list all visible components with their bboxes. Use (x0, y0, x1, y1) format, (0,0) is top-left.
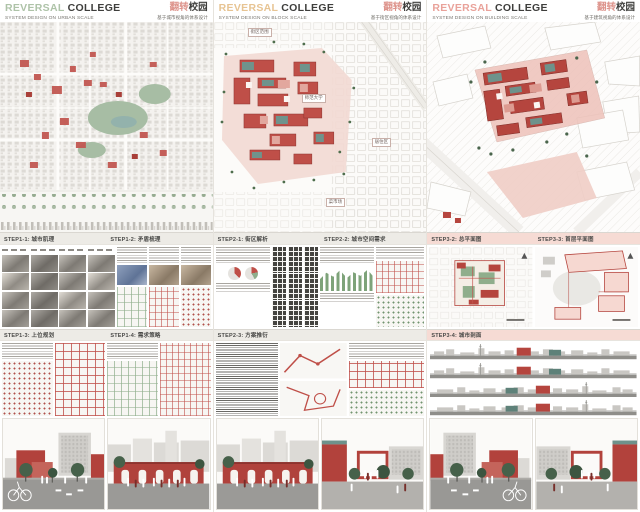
site-photo (88, 310, 115, 327)
red-wall-render (216, 418, 319, 510)
step-label: STEP1-3: 上位规划 (0, 331, 106, 339)
map-label: 街区范围 (248, 28, 272, 37)
title-cn-accent: 翻转 (170, 2, 189, 13)
presentation-board: REVERSAL COLLEGE SYSTEM DESIGN ON URBAN … (0, 0, 640, 512)
plan-thumb (272, 247, 286, 273)
step-label: STEP3-2: 总平面图 (427, 235, 533, 243)
analysis-map (376, 261, 424, 293)
pie-charts (216, 265, 270, 281)
panel1-title-cn: 翻转校园 基于城市视角的体系设计 (157, 3, 208, 22)
title-en-rest: COLLEGE (495, 2, 548, 14)
site-photo (2, 255, 29, 272)
floorplan-matrix (272, 247, 318, 327)
panel3-header: REVERSAL COLLEGE SYSTEM DESIGN ON BUILDI… (427, 0, 640, 22)
analysis-map (181, 287, 211, 327)
analysis-map (376, 295, 424, 327)
photo-column-header (59, 249, 86, 252)
title-en-rest: COLLEGE (281, 2, 334, 14)
strategy-map (107, 361, 158, 416)
site-photo (31, 255, 58, 272)
photo-column-header (88, 249, 115, 252)
subtitle-cn: 基于建筑视角的体系设计 (584, 15, 635, 21)
title-en-accent: REVERSAL (219, 2, 278, 14)
title-cn-rest: 校园 (402, 2, 421, 13)
site-photo (88, 292, 115, 309)
step-label: STEP2-3: 方案推衍 (214, 331, 427, 339)
plan-thumbnails (272, 247, 318, 327)
site-photo (31, 273, 58, 290)
site-photo (88, 273, 115, 290)
analysis-column (149, 247, 179, 327)
title-cn-accent: 翻转 (597, 2, 616, 13)
title-en-accent: REVERSAL (5, 2, 64, 14)
panel2-header: REVERSAL COLLEGE SYSTEM DESIGN ON BLOCK … (214, 0, 427, 22)
pie-chart (245, 267, 258, 280)
contradiction-analysis (117, 247, 211, 327)
site-photo (88, 255, 115, 272)
subtitle-en: SYSTEM DESIGN ON URBAN SCALE (5, 16, 120, 21)
photo-column-header (31, 249, 58, 252)
plan-thumb (288, 274, 302, 300)
site-photo (2, 310, 29, 327)
program-text-block (216, 343, 279, 416)
site-photo (59, 273, 86, 290)
strategy-map (55, 343, 106, 416)
plan-thumb (304, 247, 318, 273)
plan-thumb (272, 301, 286, 327)
scale-bar (612, 319, 630, 321)
text-block (376, 247, 424, 259)
scale-bar (507, 319, 525, 321)
strategy-column (2, 343, 53, 416)
analysis-column (216, 247, 270, 327)
photo-column-header (2, 249, 29, 252)
step-label: STEP2-2: 城市空间需求 (320, 235, 426, 243)
text-block (107, 343, 158, 359)
text-block (320, 247, 374, 263)
subtitle-en: SYSTEM DESIGN ON BLOCK SCALE (219, 16, 334, 21)
panel1-site-photo-analysis (0, 245, 213, 329)
route-diagram (280, 381, 347, 417)
panel3-step-banner-1: STEP3-2: 总平面图 STEP3-3: 首层平面图 (427, 232, 640, 245)
analysis-column (376, 247, 424, 327)
urban-figure-ground-map (0, 22, 213, 232)
panel-urban-scale: REVERSAL COLLEGE SYSTEM DESIGN ON URBAN … (0, 0, 213, 512)
strategy-map (349, 390, 424, 417)
panel2-scheme-derivation (214, 341, 427, 418)
text-block (2, 343, 53, 359)
route-diagrams (280, 343, 347, 416)
plan-thumb (304, 301, 318, 327)
plan-thumb (304, 274, 318, 300)
text-block (320, 293, 374, 303)
analysis-photo (117, 265, 147, 285)
panel1-title-en: REVERSAL COLLEGE SYSTEM DESIGN ON URBAN … (5, 3, 120, 22)
strategy-column (55, 343, 106, 416)
pie-chart (228, 267, 241, 280)
panel2-step-banner-1: STEP2-1: 街区解析 STEP2-2: 城市空间需求 (214, 232, 427, 245)
site-photo (2, 292, 29, 309)
text-block (216, 247, 270, 263)
analysis-column (181, 247, 211, 327)
city-section-strip (430, 362, 637, 379)
analysis-map (149, 287, 179, 327)
map-label: 居住区 (372, 138, 392, 147)
step-label: STEP1-4: 需求策略 (106, 331, 212, 339)
panel2-perspective-renders (214, 418, 427, 512)
text-block (117, 247, 147, 263)
site-photo (31, 310, 58, 327)
route-diagram (280, 343, 347, 379)
map-label: 菜市场 (326, 198, 346, 207)
subtitle-en: SYSTEM DESIGN ON BUILDING SCALE (432, 16, 547, 21)
site-photo (2, 273, 29, 290)
site-photo (59, 255, 86, 272)
building-axonometric (427, 22, 640, 232)
panel-block-scale: REVERSAL COLLEGE SYSTEM DESIGN ON BLOCK … (213, 0, 427, 512)
plan-thumb (272, 274, 286, 300)
street-render (429, 418, 532, 510)
panel2-step-banner-2: STEP2-3: 方案推衍 (214, 329, 427, 341)
city-section-strip (430, 399, 637, 416)
title-en-accent: REVERSAL (432, 2, 491, 14)
step-label: STEP3-3: 首层平面图 (534, 235, 640, 243)
plaza-render (535, 418, 638, 510)
step-label: STEP1-2: 矛盾梳理 (106, 235, 212, 243)
city-section-strip (430, 343, 637, 360)
panel-building-scale: REVERSAL COLLEGE SYSTEM DESIGN ON BUILDI… (426, 0, 640, 512)
site-plan (429, 247, 532, 327)
street-render (2, 418, 105, 510)
panel1-planning-strategy (0, 341, 213, 418)
panel3-step-banner-2: STEP3-4: 城市剖面 (427, 329, 640, 341)
panel1-step-banner-1: STEP1-1: 城市肌理 STEP1-2: 矛盾梳理 (0, 232, 213, 245)
panel3-title-en: REVERSAL COLLEGE SYSTEM DESIGN ON BUILDI… (432, 3, 547, 22)
subtitle-cn: 基于街区视角的体系设计 (371, 15, 422, 21)
block-plan-map: 街区范围 师范大学 菜市场 居住区 (214, 22, 427, 232)
step-label: STEP1-1: 城市肌理 (0, 235, 106, 243)
analysis-map (117, 287, 147, 327)
step-label: STEP3-4: 城市剖面 (427, 331, 640, 339)
strategy-map (2, 361, 53, 416)
analysis-photo (181, 265, 211, 285)
title-en-rest: COLLEGE (68, 2, 121, 14)
courtyard-render (321, 418, 424, 510)
panel1-header: REVERSAL COLLEGE SYSTEM DESIGN ON URBAN … (0, 0, 213, 22)
strategy-map (160, 343, 211, 416)
title-cn-rest: 校园 (189, 2, 208, 13)
panel3-city-sections (427, 341, 640, 418)
site-photo (31, 292, 58, 309)
text-block (349, 343, 424, 359)
panel1-perspective-renders (0, 418, 213, 512)
analysis-photo (149, 265, 179, 285)
panel3-title-cn: 翻转校园 基于建筑视角的体系设计 (584, 3, 635, 22)
panel2-block-analysis (214, 245, 427, 329)
strategy-column (107, 343, 158, 416)
plan-thumb (288, 247, 302, 273)
site-photo (59, 310, 86, 327)
analysis-column (320, 247, 374, 327)
bar-chart (320, 265, 374, 291)
panel3-perspective-renders (427, 418, 640, 512)
strategy-column (349, 343, 424, 416)
first-floor-plan (535, 247, 638, 327)
panel1-step-banner-2: STEP1-3: 上位规划 STEP1-4: 需求策略 (0, 329, 213, 341)
text-block (181, 247, 211, 263)
title-cn-rest: 校园 (616, 2, 635, 13)
text-block (149, 247, 179, 263)
step-label: STEP2-1: 街区解析 (214, 235, 320, 243)
strategy-column (160, 343, 211, 416)
title-cn-accent: 翻转 (383, 2, 402, 13)
plan-thumb (288, 301, 302, 327)
site-photo (59, 292, 86, 309)
site-photo-grid (2, 247, 115, 327)
panel2-title-cn: 翻转校园 基于街区视角的体系设计 (371, 3, 422, 22)
panel3-plans (427, 245, 640, 329)
text-block (216, 283, 270, 293)
gate-render (107, 418, 210, 510)
map-label: 师范大学 (302, 94, 326, 103)
city-section-strip (430, 381, 637, 398)
panel2-title-en: REVERSAL COLLEGE SYSTEM DESIGN ON BLOCK … (219, 3, 334, 22)
analysis-column (117, 247, 147, 327)
strategy-map (349, 361, 424, 388)
subtitle-cn: 基于城市视角的体系设计 (157, 15, 208, 21)
